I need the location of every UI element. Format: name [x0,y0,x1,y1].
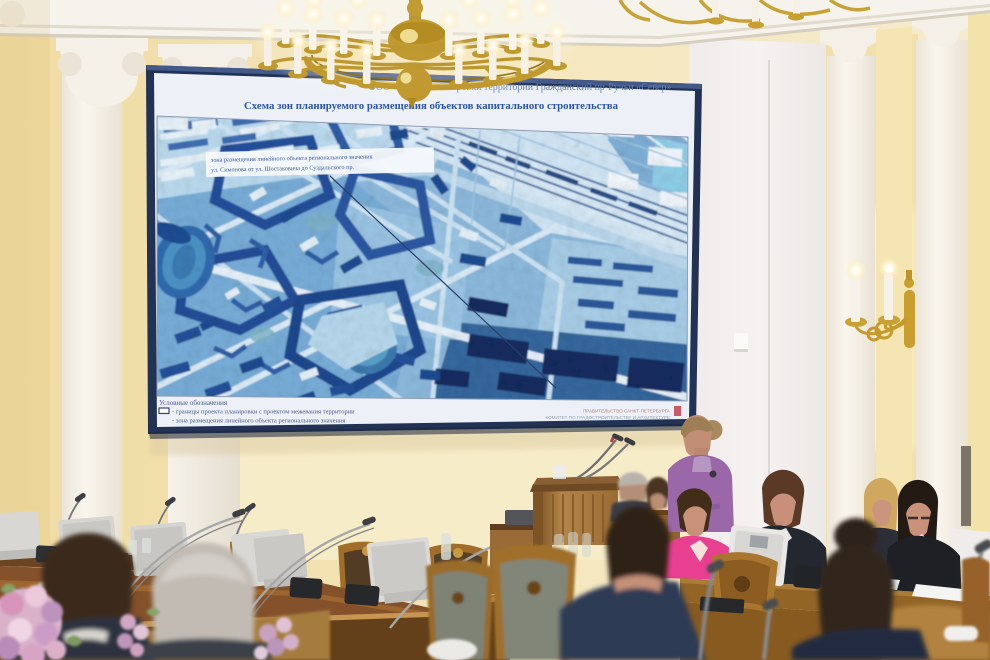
svg-text:- зона размещения линейного об: - зона размещения линейного объекта реги… [172,418,345,425]
svg-text:ПРАВИТЕЛЬСТВО САНКТ-ПЕТЕРБУРГА: ПРАВИТЕЛЬСТВО САНКТ-ПЕТЕРБУРГА [583,409,671,414]
svg-text:- границы проекта планировки с: - границы проекта планировки с проектом … [172,409,355,416]
svg-text:Схема зон планируемого размеще: Схема зон планируемого размещения объект… [244,100,619,112]
svg-text:КОМИТЕТ ПО ГРАДОСТРОИТЕЛЬСТВУ: КОМИТЕТ ПО ГРАДОСТРОИТЕЛЬСТВУ И АРХИТЕКТ… [545,415,670,420]
svg-text:Условные обозначения: Условные обозначения [159,399,228,407]
